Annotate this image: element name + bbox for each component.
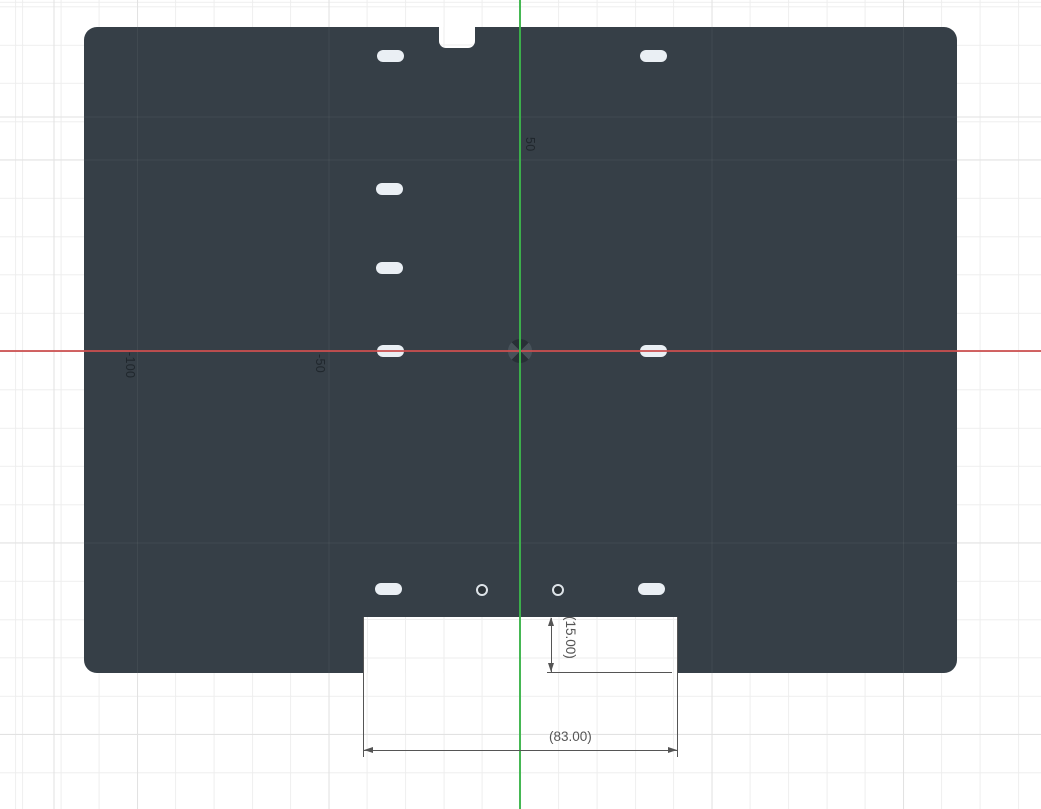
plate-top-notch-cutout[interactable] [439,27,475,48]
slot-cutout[interactable] [376,262,403,274]
arrow-up-icon [548,617,554,626]
dimension-value[interactable]: (83.00) [549,729,592,744]
grid-coordinate-label: -100 [123,352,136,378]
extension-line [547,672,672,673]
slot-cutout[interactable] [640,50,667,62]
slot-cutout[interactable] [638,583,665,595]
grid-coordinate-label: -50 [313,354,326,373]
hole-circle[interactable] [476,584,488,596]
arrow-down-icon [548,663,554,672]
extension-line-right [677,617,678,757]
sketch-viewport[interactable]: 50-50-100 (15.00) (83.00) [0,0,1041,809]
arrow-right-icon [668,747,677,753]
grid-coordinate-label: 50 [523,137,536,152]
slot-cutout[interactable] [375,583,402,595]
extension-line-left [363,617,364,757]
slot-cutout[interactable] [376,183,403,195]
arrow-left-icon [364,747,373,753]
hole-circle[interactable] [552,584,564,596]
dimension-line [364,750,677,751]
y-axis-line[interactable] [519,0,521,809]
dimension-value[interactable]: (15.00) [563,616,578,659]
slot-cutout[interactable] [377,50,404,62]
